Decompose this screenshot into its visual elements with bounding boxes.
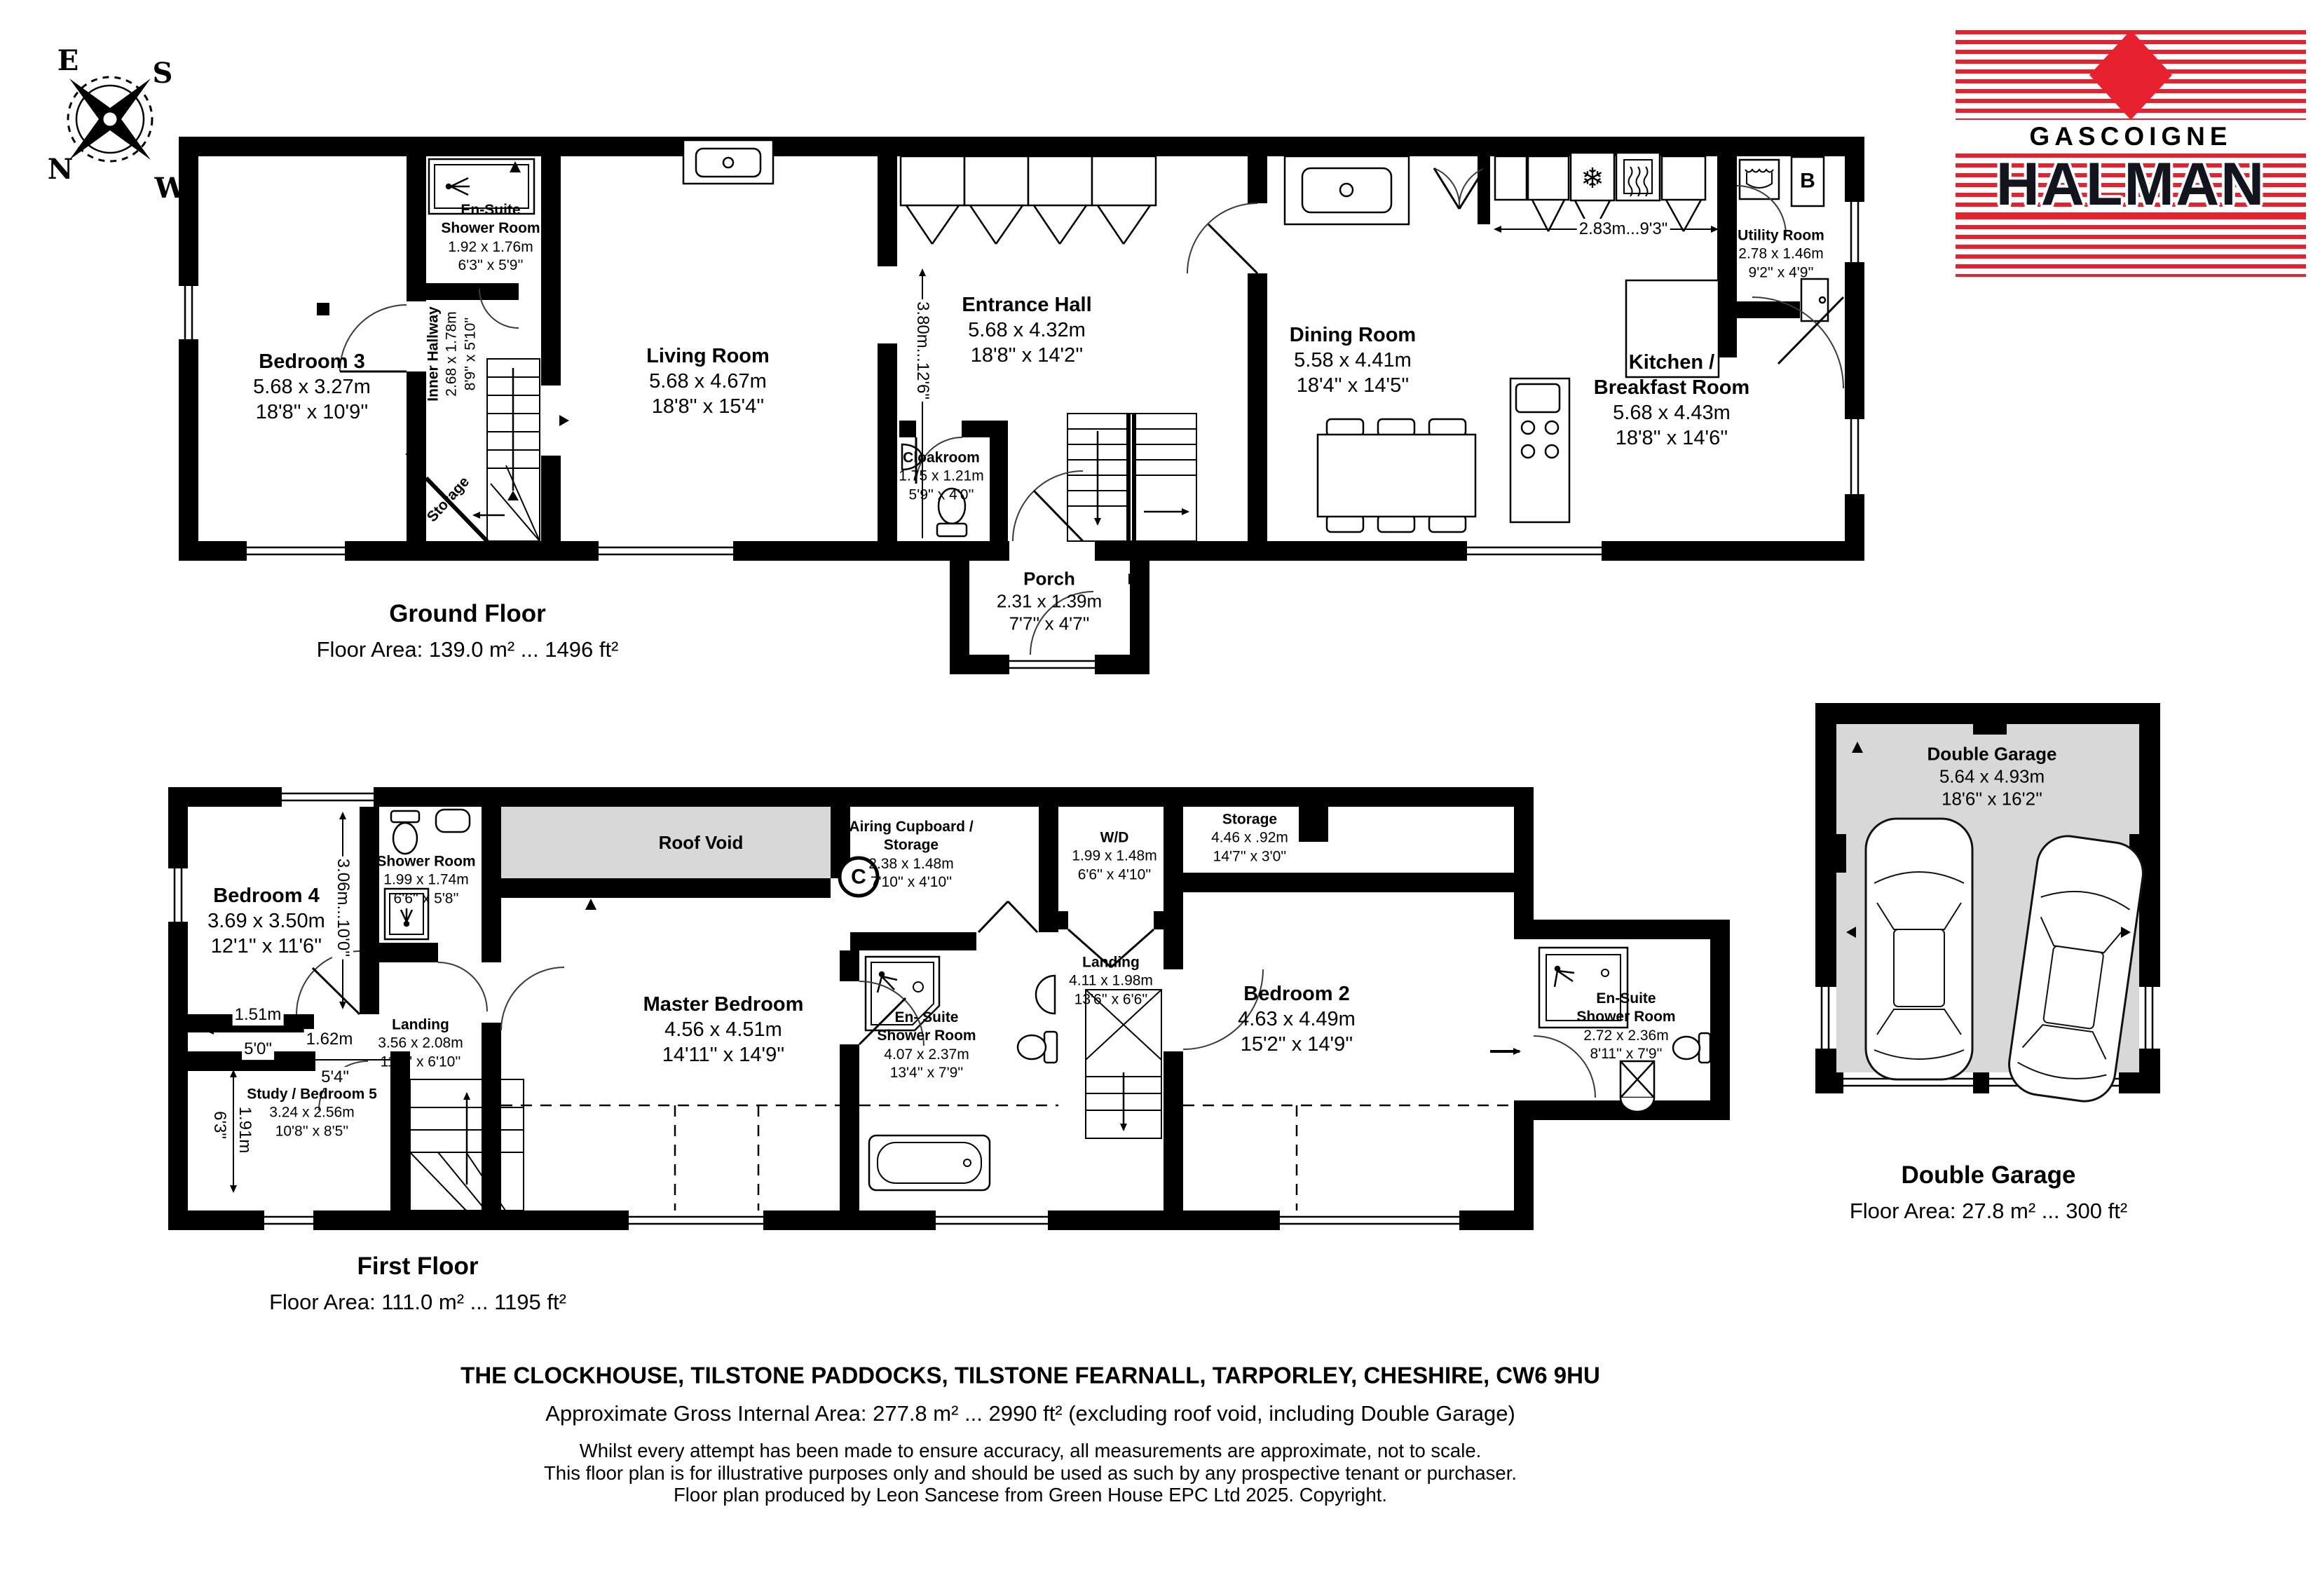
- dim-54ft: 5'4": [319, 1067, 351, 1088]
- label-master-bedroom: Master Bedroom4.56 x 4.51m14'11'' x 14'9…: [643, 993, 804, 1068]
- label-shower-room-first: Shower Room1.99 x 1.74m6'6'' x 5'8'': [376, 852, 475, 908]
- label-utility-room: Utility Room2.78 x 1.46m9'2'' x 4'9'': [1738, 226, 1824, 282]
- label-ensuite-2: En-SuiteShower Room2.72 x 2.36m8'11'' x …: [1576, 990, 1675, 1064]
- label-dining-room: Dining Room5.58 x 4.41m18'4'' x 14'5'': [1290, 323, 1416, 399]
- label-inner-hallway: Inner Hallway2.68 x 1.78m8'9'' x 5'10'': [424, 306, 479, 401]
- footer-address: THE CLOCKHOUSE, TILSTONE PADDOCKS, TILST…: [460, 1362, 1600, 1391]
- floor-plan-page: { "meta": {"width": 3300, "height": 2277…: [0, 0, 2313, 1596]
- footer-disclaimer-2: This floor plan is for illustrative purp…: [544, 1461, 1517, 1485]
- gascoigne-halman-logo: GASCOIGNE HALMAN: [1956, 30, 2306, 277]
- dim-bed4-depth: 3.06m...10'0'': [332, 857, 353, 960]
- label-boiler: B: [1800, 168, 1815, 193]
- dim-63ft: 6'3": [209, 1109, 230, 1141]
- footer-disclaimer-1: Whilst every attempt has been made to en…: [580, 1439, 1482, 1463]
- label-double-garage: Double Garage5.64 x 4.93m18'6'' x 16'2'': [1927, 743, 2057, 811]
- label-porch: Porch2.31 x 1.39m7'7'' x 4'7'': [997, 568, 1102, 636]
- label-airing-cupboard: Airing Cupboard /Storage2.38 x 1.48m7'10…: [849, 818, 973, 892]
- label-roof-void: Roof Void: [659, 831, 744, 854]
- dim-151m: 1.51m: [233, 1004, 284, 1025]
- label-wd: W/D1.99 x 1.48m6'6'' x 4'10'': [1072, 828, 1156, 884]
- logo-gascoigne-text: GASCOIGNE: [1956, 120, 2306, 154]
- label-cloakroom: Cloakroom1.75 x 1.21m5'9'' x 4'0'': [899, 449, 983, 504]
- dim-191m: 1.91m: [234, 1105, 255, 1156]
- label-storage-ground: Storage: [423, 473, 474, 526]
- logo-diamond-icon: [2089, 30, 2172, 120]
- label-landing-left: Landing3.56 x 2.08m11'8'' x 6'10'': [378, 1016, 463, 1071]
- label-bedroom-4: Bedroom 43.69 x 3.50m12'1'' x 11'6'': [207, 884, 325, 960]
- dim-162m: 1.62m: [304, 1029, 355, 1050]
- label-ensuite-ground: En-SuiteShower Room1.92 x 1.76m6'3'' x 5…: [441, 201, 540, 275]
- logo-stripes: [1956, 215, 2306, 277]
- logo-halman-word: HALMAN: [1996, 150, 2266, 219]
- caption-double-garage: Double GarageFloor Area: 27.8 m² ... 300…: [1850, 1157, 2127, 1228]
- caption-ground-floor: Ground FloorFloor Area: 139.0 m² ... 149…: [317, 595, 619, 667]
- label-study-bedroom-5: Study / Bedroom 53.24 x 2.56m10'8'' x 8'…: [247, 1085, 377, 1140]
- label-kitchen: Kitchen /Breakfast Room5.68 x 4.43m18'8'…: [1594, 350, 1749, 451]
- label-living-room: Living Room5.68 x 4.67m18'8'' x 15'4'': [646, 344, 770, 420]
- label-ensuite-master: En- SuiteShower Room4.07 x 2.37m13'4'' x…: [877, 1009, 976, 1083]
- dim-50ft: 5'0": [242, 1039, 274, 1060]
- caption-first-floor: First FloorFloor Area: 111.0 m² ... 1195…: [269, 1248, 566, 1319]
- logo-stripes: [1956, 30, 2306, 120]
- label-bedroom-3: Bedroom 35.68 x 3.27m18'8'' x 10'9'': [253, 350, 371, 425]
- label-storage-first: Storage4.46 x .92m14'7'' x 3'0'': [1211, 810, 1288, 866]
- label-entrance-hall: Entrance Hall5.68 x 4.32m18'8'' x 14'2'': [962, 293, 1091, 369]
- footer-gross-area: Approximate Gross Internal Area: 277.8 m…: [545, 1400, 1515, 1427]
- dim-hall-depth: 3.80m...12'6": [912, 299, 933, 402]
- label-bedroom-2: Bedroom 24.63 x 4.49m15'2'' x 14'9'': [1238, 982, 1356, 1058]
- label-landing-mid: Landing4.11 x 1.98m13'6'' x 6'6'': [1069, 953, 1153, 1009]
- label-c-circle: C: [851, 864, 866, 889]
- footer-credit: Floor plan produced by Leon Sancese from…: [674, 1483, 1387, 1507]
- dim-kitchen-width: 2.83m...9'3": [1577, 219, 1670, 240]
- logo-halman-text: HALMAN: [1956, 154, 2306, 215]
